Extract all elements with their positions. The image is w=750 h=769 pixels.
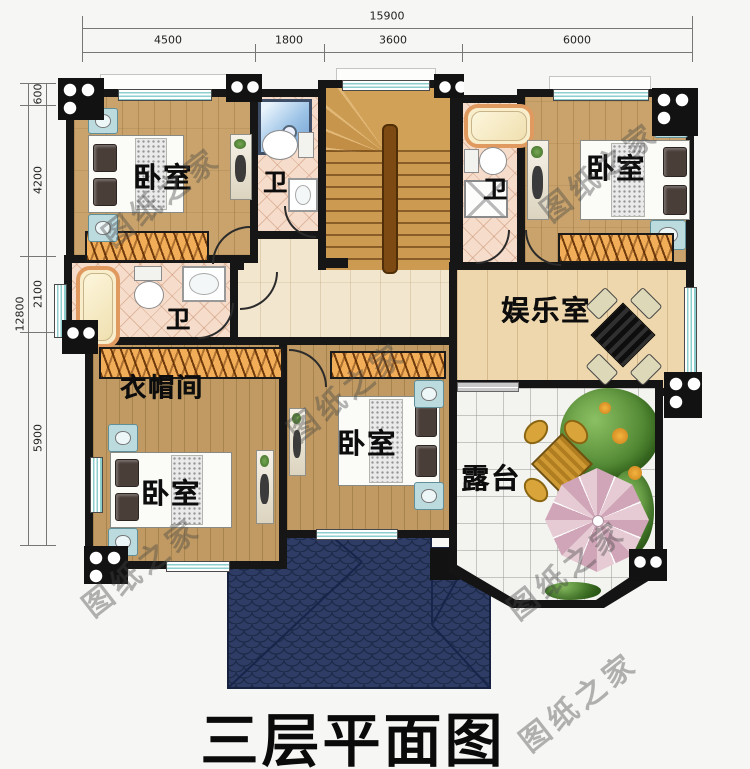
nightstand — [414, 482, 444, 510]
label-bedroom-bottom-left: 卧室 — [141, 472, 201, 512]
label-terrace: 露台 — [461, 457, 521, 497]
corner-post — [434, 74, 464, 98]
dresser — [256, 450, 274, 524]
label-bath-left: 卫 — [166, 300, 192, 335]
pillow — [415, 405, 437, 437]
dim-left-seg-3: 2100 — [32, 280, 45, 308]
sink — [288, 178, 318, 212]
label-bedroom-bottom-middle: 卧室 — [337, 422, 397, 462]
dim-line-left-total — [28, 83, 29, 545]
corner-post — [664, 372, 702, 418]
wall-stub — [318, 258, 348, 268]
dim-top-seg-4: 6000 — [563, 34, 591, 47]
dim-top-seg-3: 3600 — [379, 34, 407, 47]
plant-stand — [230, 134, 252, 200]
pillow — [415, 445, 437, 477]
dim-left-seg-4: 5900 — [32, 424, 45, 452]
dim-tick — [692, 16, 693, 62]
pillow — [93, 144, 117, 172]
window — [684, 287, 697, 373]
window — [90, 457, 103, 513]
pillow — [663, 147, 687, 177]
window — [316, 529, 398, 540]
dim-tick — [20, 545, 56, 546]
pillow — [115, 459, 139, 487]
stair-railing — [382, 124, 398, 274]
nightstand — [108, 424, 138, 452]
dim-tick — [255, 44, 256, 62]
toilet-tank — [464, 149, 479, 173]
dim-left-total: 12800 — [14, 297, 27, 332]
sink — [182, 266, 226, 302]
dim-top-seg-1: 4500 — [154, 34, 182, 47]
label-entertainment: 娱乐室 — [501, 289, 591, 329]
dim-left-seg-1: 600 — [32, 84, 45, 105]
dim-tick — [20, 105, 56, 106]
toilet-tank — [298, 132, 314, 158]
toilet-bowl — [262, 130, 298, 160]
toilet-bowl — [134, 281, 164, 309]
dim-top-total: 15900 — [370, 10, 405, 23]
dim-top-seg-2: 1800 — [275, 34, 303, 47]
sliding-door-terrace — [457, 382, 519, 392]
toilet-tank — [134, 266, 162, 281]
pillow — [663, 185, 687, 215]
dim-tick — [20, 256, 56, 257]
corner-post — [58, 78, 104, 120]
terrace-chair — [519, 415, 553, 449]
pillow — [115, 493, 139, 521]
terrace-flower — [628, 466, 642, 480]
floor-plan-page: 15900 4500 1800 3600 6000 12800 600 4200… — [0, 0, 750, 769]
wardrobe — [558, 233, 674, 263]
corner-post — [652, 88, 698, 136]
floor-plan-title: 三层平面图 — [200, 694, 505, 769]
nightstand — [414, 380, 444, 408]
room-entertainment — [449, 262, 694, 396]
dim-tick — [324, 44, 325, 62]
dim-left-seg-2: 4200 — [32, 166, 45, 194]
toilet — [262, 128, 316, 160]
dim-tick — [82, 16, 83, 62]
terrace-flower — [612, 428, 628, 444]
corner-post — [629, 549, 667, 581]
window — [118, 89, 212, 101]
dim-tick — [462, 44, 463, 62]
dim-line-top-total — [82, 28, 692, 29]
bathtub — [464, 104, 534, 148]
dim-line-left-segments — [46, 83, 47, 545]
corner-post — [62, 320, 98, 354]
label-bath-right: 卫 — [483, 170, 509, 205]
toilet — [128, 266, 170, 308]
label-bath-top: 卫 — [263, 163, 289, 198]
label-cloakroom: 衣帽间 — [120, 368, 204, 405]
dim-tick — [20, 332, 56, 333]
window — [342, 80, 430, 91]
window — [553, 89, 649, 101]
corner-post — [226, 74, 262, 102]
dim-line-top-segments — [82, 52, 692, 53]
staircase — [318, 80, 458, 270]
terrace-flower — [599, 402, 611, 414]
